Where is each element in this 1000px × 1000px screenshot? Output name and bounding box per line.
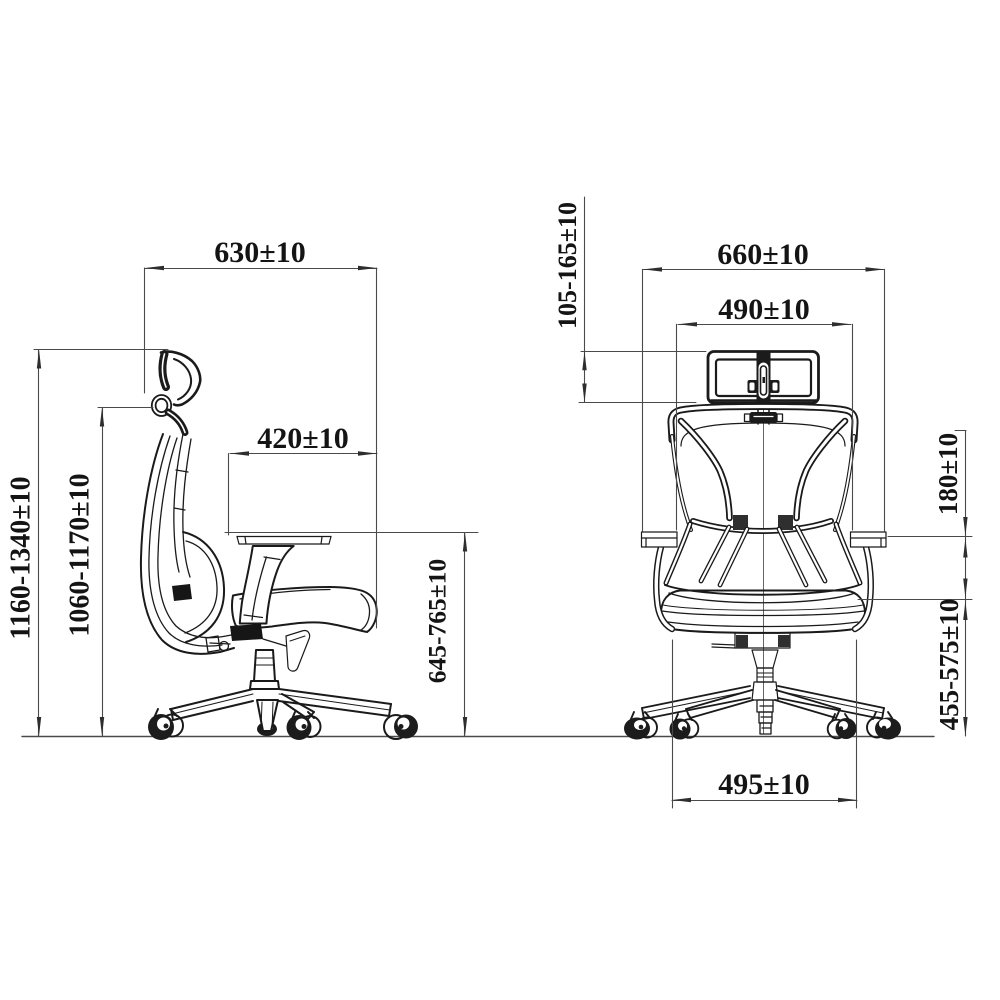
svg-text:180±10: 180±10 — [933, 433, 963, 515]
svg-text:105-165±10: 105-165±10 — [553, 202, 582, 329]
svg-text:420±10: 420±10 — [257, 422, 348, 455]
svg-text:660±10: 660±10 — [717, 238, 808, 271]
svg-text:645-765±10: 645-765±10 — [423, 559, 452, 684]
svg-text:630±10: 630±10 — [214, 236, 305, 269]
svg-text:490±10: 490±10 — [718, 293, 809, 326]
svg-text:1160-1340±10: 1160-1340±10 — [6, 476, 37, 639]
svg-text:495±10: 495±10 — [718, 768, 809, 801]
svg-text:1060-1170±10: 1060-1170±10 — [65, 473, 96, 636]
svg-text:455-575±10: 455-575±10 — [934, 599, 964, 731]
